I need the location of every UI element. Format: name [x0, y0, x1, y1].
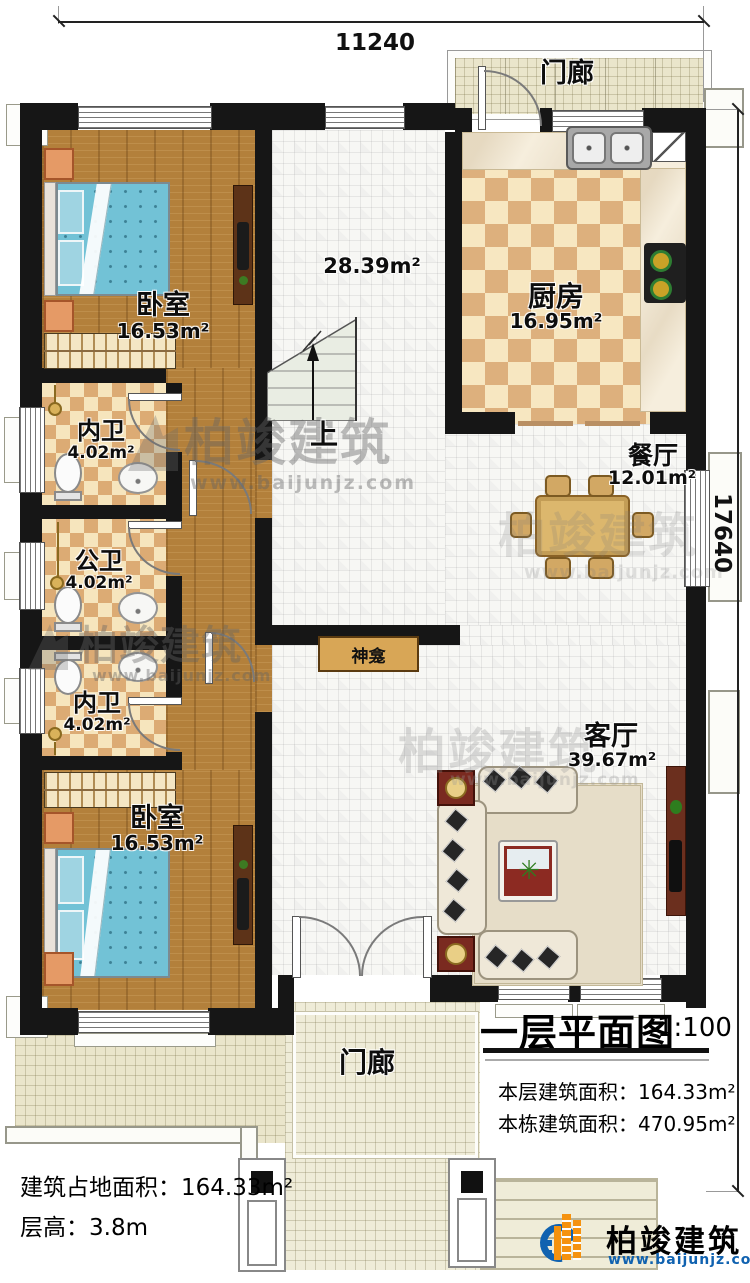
wall-kitchen-bottom [650, 412, 706, 434]
nightstand [44, 148, 74, 180]
window-bedroom-top [78, 106, 212, 129]
floor-height-label: 层高： [20, 1215, 89, 1241]
dim-extension [706, 1191, 738, 1192]
label-hall-area: 28.39m² [322, 255, 422, 277]
footprint-label: 建筑占地面积： [20, 1175, 181, 1201]
title-rule [483, 1048, 709, 1053]
dim-extension [706, 109, 738, 110]
bed-pillow [58, 190, 84, 234]
label-bath-public-area: 4.02m² [56, 575, 142, 593]
label-kitchen-name: 厨房 [508, 282, 604, 311]
bed-pillow [58, 240, 84, 286]
label-bedroom-top-name: 卧室 [116, 292, 210, 320]
nightstand [44, 812, 74, 844]
wall-living-west [255, 712, 272, 1010]
shower-cord [54, 742, 56, 755]
window-hall [325, 106, 405, 129]
kitchen-passage-mark [585, 421, 640, 426]
window-bedroom-bottom [78, 1011, 210, 1033]
dim-line-right [737, 110, 739, 1192]
label-dining-area: 12.01m² [607, 469, 697, 489]
plant-icon: ✳ [514, 856, 544, 886]
nightstand [44, 952, 74, 986]
wall-kitchen-top [540, 108, 552, 132]
porch-column-base [457, 1198, 487, 1262]
label-porch-top: 门廊 [515, 60, 619, 88]
footprint-line: 建筑占地面积：164.33m² [20, 1168, 293, 1202]
door-threshold [255, 645, 272, 712]
dim-right-value: 17640 [709, 493, 735, 573]
wall-bath-divider [42, 505, 182, 519]
stove-burner-icon [650, 278, 672, 300]
passage-floor [458, 625, 686, 645]
wall-left [20, 608, 42, 668]
label-bath2-name: 内卫 [56, 691, 138, 716]
sink-icon [118, 592, 158, 624]
porch-bottom-frame [293, 1012, 478, 1158]
window-bath1 [19, 407, 45, 493]
label-dining-name: 餐厅 [614, 443, 692, 469]
kitchen-sink-basin [610, 132, 644, 164]
wall-hall-west [255, 518, 272, 625]
wall-right [686, 585, 706, 1008]
lamp-icon [445, 777, 467, 799]
label-bedroom-top-area: 16.53m² [110, 321, 216, 342]
logo-building-bar [562, 1214, 571, 1260]
shower-cord [54, 385, 56, 403]
lamp-icon [445, 943, 467, 965]
logo-window-dot [546, 1250, 552, 1256]
wardrobe-rail [44, 350, 176, 352]
plan-scale: 1:100 [657, 1013, 732, 1043]
logo-building-bar [554, 1226, 561, 1260]
dining-chair [510, 512, 532, 538]
label-living-area: 39.67m² [568, 751, 652, 771]
floor-height-value: 3.8m [89, 1215, 148, 1241]
sink-icon [118, 462, 158, 494]
wall-kitchen-left [445, 132, 462, 424]
title-rule-thin [485, 1059, 709, 1061]
plant-icon [239, 860, 248, 869]
wall-bottom-right [660, 975, 706, 1002]
window-sill [74, 1033, 216, 1047]
floor-area-label: 本层建筑面积： [498, 1080, 638, 1104]
wall-left [20, 103, 42, 407]
dim-line-top [58, 21, 704, 23]
plant-icon [670, 800, 682, 814]
label-bath2-area: 4.02m² [54, 717, 140, 735]
porch-column-cap [461, 1171, 483, 1193]
dining-table [535, 495, 630, 557]
logo-window-dot [546, 1240, 552, 1246]
wall-kitchen-top [455, 108, 472, 132]
tv-icon [669, 840, 682, 892]
shower-icon [48, 402, 62, 416]
dining-chair [545, 557, 571, 579]
door-threshold [255, 458, 272, 520]
stove-burner-icon [650, 250, 672, 272]
wall-top [403, 103, 455, 130]
building-area-line: 本栋建筑面积：470.95m² [498, 1108, 735, 1137]
dining-chair [545, 475, 571, 497]
label-living-name: 客厅 [578, 723, 644, 751]
footprint-value: 164.33m² [181, 1175, 293, 1201]
floor-area-value: 164.33m² [638, 1080, 735, 1104]
kitchen-sink-basin [572, 132, 606, 164]
wall-top [210, 103, 325, 130]
monitor-icon [237, 222, 249, 270]
plant-icon [239, 276, 248, 285]
wardrobe-rail [44, 789, 176, 791]
wall-jog [278, 975, 294, 1035]
floor-area-line: 本层建筑面积：164.33m² [498, 1076, 735, 1105]
building-area-label: 本栋建筑面积： [498, 1112, 638, 1136]
stairs [267, 317, 357, 421]
floor-plan-canvas: 神龛 ✳ 门廊 卧室 16.53m² 28.39m² 厨房 16.95m² 内卫… [0, 0, 750, 1283]
monitor-icon [237, 878, 249, 930]
wall-bath-bedroom2 [42, 756, 182, 770]
terrace-railing [5, 1126, 258, 1144]
wall-left [20, 491, 42, 542]
building-area-value: 470.95m² [638, 1112, 735, 1136]
wall-bath-east [166, 383, 182, 393]
label-bedroom-bottom-name: 卧室 [110, 805, 204, 833]
corner-cabinet [652, 132, 686, 162]
label-porch-bottom: 门廊 [313, 1048, 421, 1077]
window-bath2 [19, 668, 45, 734]
dim-top-value: 11240 [300, 30, 450, 56]
wall-bath-divider [42, 636, 182, 650]
wall-top [20, 103, 78, 130]
label-bath1-name: 内卫 [60, 419, 142, 444]
dining-chair [588, 557, 614, 579]
wall-kitchen-bottom [445, 412, 515, 434]
dining-chair [632, 512, 654, 538]
label-bedroom-bottom-area: 16.53m² [104, 833, 210, 854]
toilet-tank [54, 622, 82, 632]
wall-bottom-left [20, 1008, 78, 1035]
brand-site: www.baijunjz.com [608, 1252, 750, 1268]
shrine-label: 神龛 [352, 642, 386, 667]
label-bath-public-name: 公卫 [58, 549, 140, 574]
kitchen-passage-mark [518, 421, 573, 426]
bed-headboard [44, 182, 56, 296]
toilet-tank [54, 491, 82, 501]
label-kitchen-area: 16.95m² [505, 311, 607, 332]
railing-right [708, 690, 740, 794]
entry-door-leaf-right [423, 916, 432, 978]
window-bath-public [19, 542, 45, 610]
floor-height-line: 层高：3.8m [20, 1208, 148, 1242]
label-stairs-up: 上 [303, 420, 345, 449]
porch-column-base [247, 1200, 277, 1266]
shrine-cabinet: 神龛 [318, 636, 419, 672]
wall-left [20, 732, 42, 1035]
nightstand [44, 300, 74, 332]
label-bath1-area: 4.02m² [58, 445, 144, 463]
logo-building-bar [573, 1220, 581, 1260]
brand-logo-icon [540, 1214, 598, 1270]
sink-icon [118, 652, 158, 682]
wall-bedroom1-bath [42, 368, 166, 383]
bed-pillow [58, 856, 84, 904]
